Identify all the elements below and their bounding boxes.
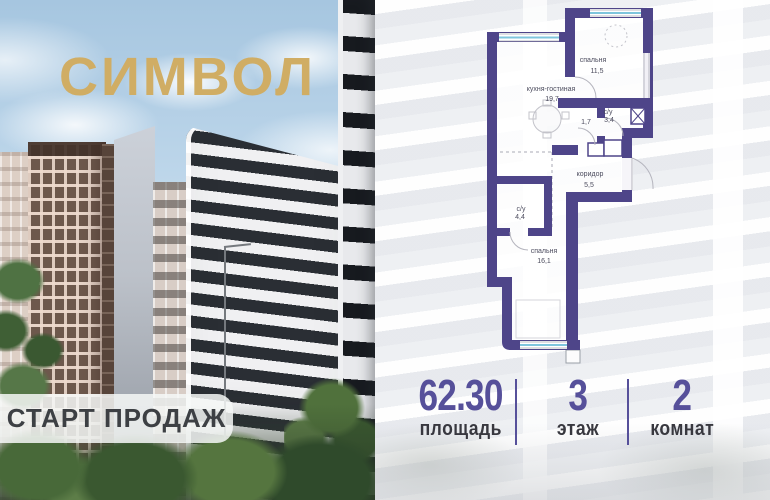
room-area-bedroom2: 16,1 bbox=[537, 258, 551, 265]
entrance-door-gap bbox=[621, 158, 633, 190]
room-area-bedroom1: 11,5 bbox=[590, 68, 603, 75]
room-label-kitchen: кухня-гостиная bbox=[527, 86, 576, 93]
room-area-kitchen: 19,7 bbox=[545, 96, 559, 103]
room-label-wc2: с/у bbox=[517, 206, 526, 213]
listing-card: СИМВОЛ СТАРТ ПРОДАЖ bbox=[0, 0, 770, 500]
stats-row: 62.30 площадь 3 этаж 2 комнат bbox=[375, 376, 770, 456]
hero-photo: СИМВОЛ СТАРТ ПРОДАЖ bbox=[0, 0, 375, 500]
stat-floor: 3 этаж bbox=[528, 376, 628, 439]
room-area-corridor: 5,5 bbox=[584, 182, 594, 189]
stat-floor-label: этаж bbox=[557, 419, 599, 439]
stats-divider-1 bbox=[515, 379, 517, 445]
room-area-lobby: 1,7 bbox=[581, 119, 591, 126]
sales-start-badge: СТАРТ ПРОДАЖ bbox=[0, 394, 233, 443]
stat-area: 62.30 площадь bbox=[381, 376, 541, 439]
stat-area-label: площадь bbox=[420, 419, 502, 439]
brand-logo: СИМВОЛ bbox=[0, 46, 375, 108]
room-label-bedroom2: спальня bbox=[531, 248, 558, 255]
floor-plan: спальня 11,5 кухня-гостиная 19,7 с/у 3,4… bbox=[480, 0, 680, 370]
balcony bbox=[566, 350, 580, 363]
stat-rooms: 2 комнат bbox=[632, 376, 732, 439]
stat-area-value: 62.30 bbox=[419, 376, 503, 416]
stat-rooms-label: комнат bbox=[650, 419, 714, 439]
stat-floor-value: 3 bbox=[569, 376, 588, 416]
room-label-corridor: коридор bbox=[577, 171, 604, 178]
room-area-wc2: 4,4 bbox=[515, 214, 525, 221]
plan-panel: спальня 11,5 кухня-гостиная 19,7 с/у 3,4… bbox=[375, 0, 770, 500]
room-area-wc1: 3,4 bbox=[604, 117, 614, 124]
room-label-wc1: с/у bbox=[604, 109, 613, 116]
stat-rooms-value: 2 bbox=[673, 376, 692, 416]
stats-divider-2 bbox=[627, 379, 629, 445]
room-label-bedroom1: спальня bbox=[580, 57, 607, 64]
